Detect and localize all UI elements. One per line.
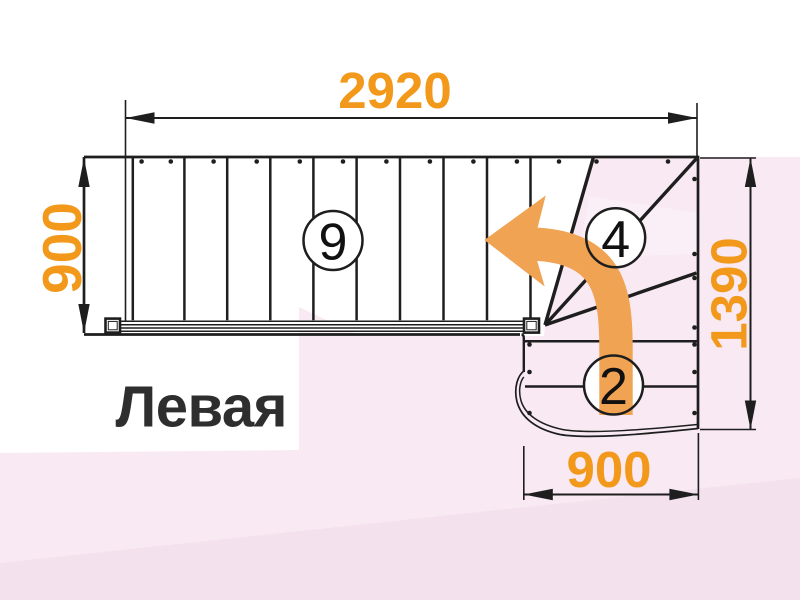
svg-text:1390: 1390: [701, 237, 758, 350]
svg-text:9: 9: [319, 214, 348, 272]
svg-text:2: 2: [599, 358, 628, 416]
svg-text:2920: 2920: [338, 62, 451, 119]
svg-text:Левая: Левая: [116, 374, 287, 439]
svg-text:900: 900: [566, 441, 651, 498]
svg-text:900: 900: [31, 202, 93, 294]
svg-text:4: 4: [601, 211, 630, 269]
